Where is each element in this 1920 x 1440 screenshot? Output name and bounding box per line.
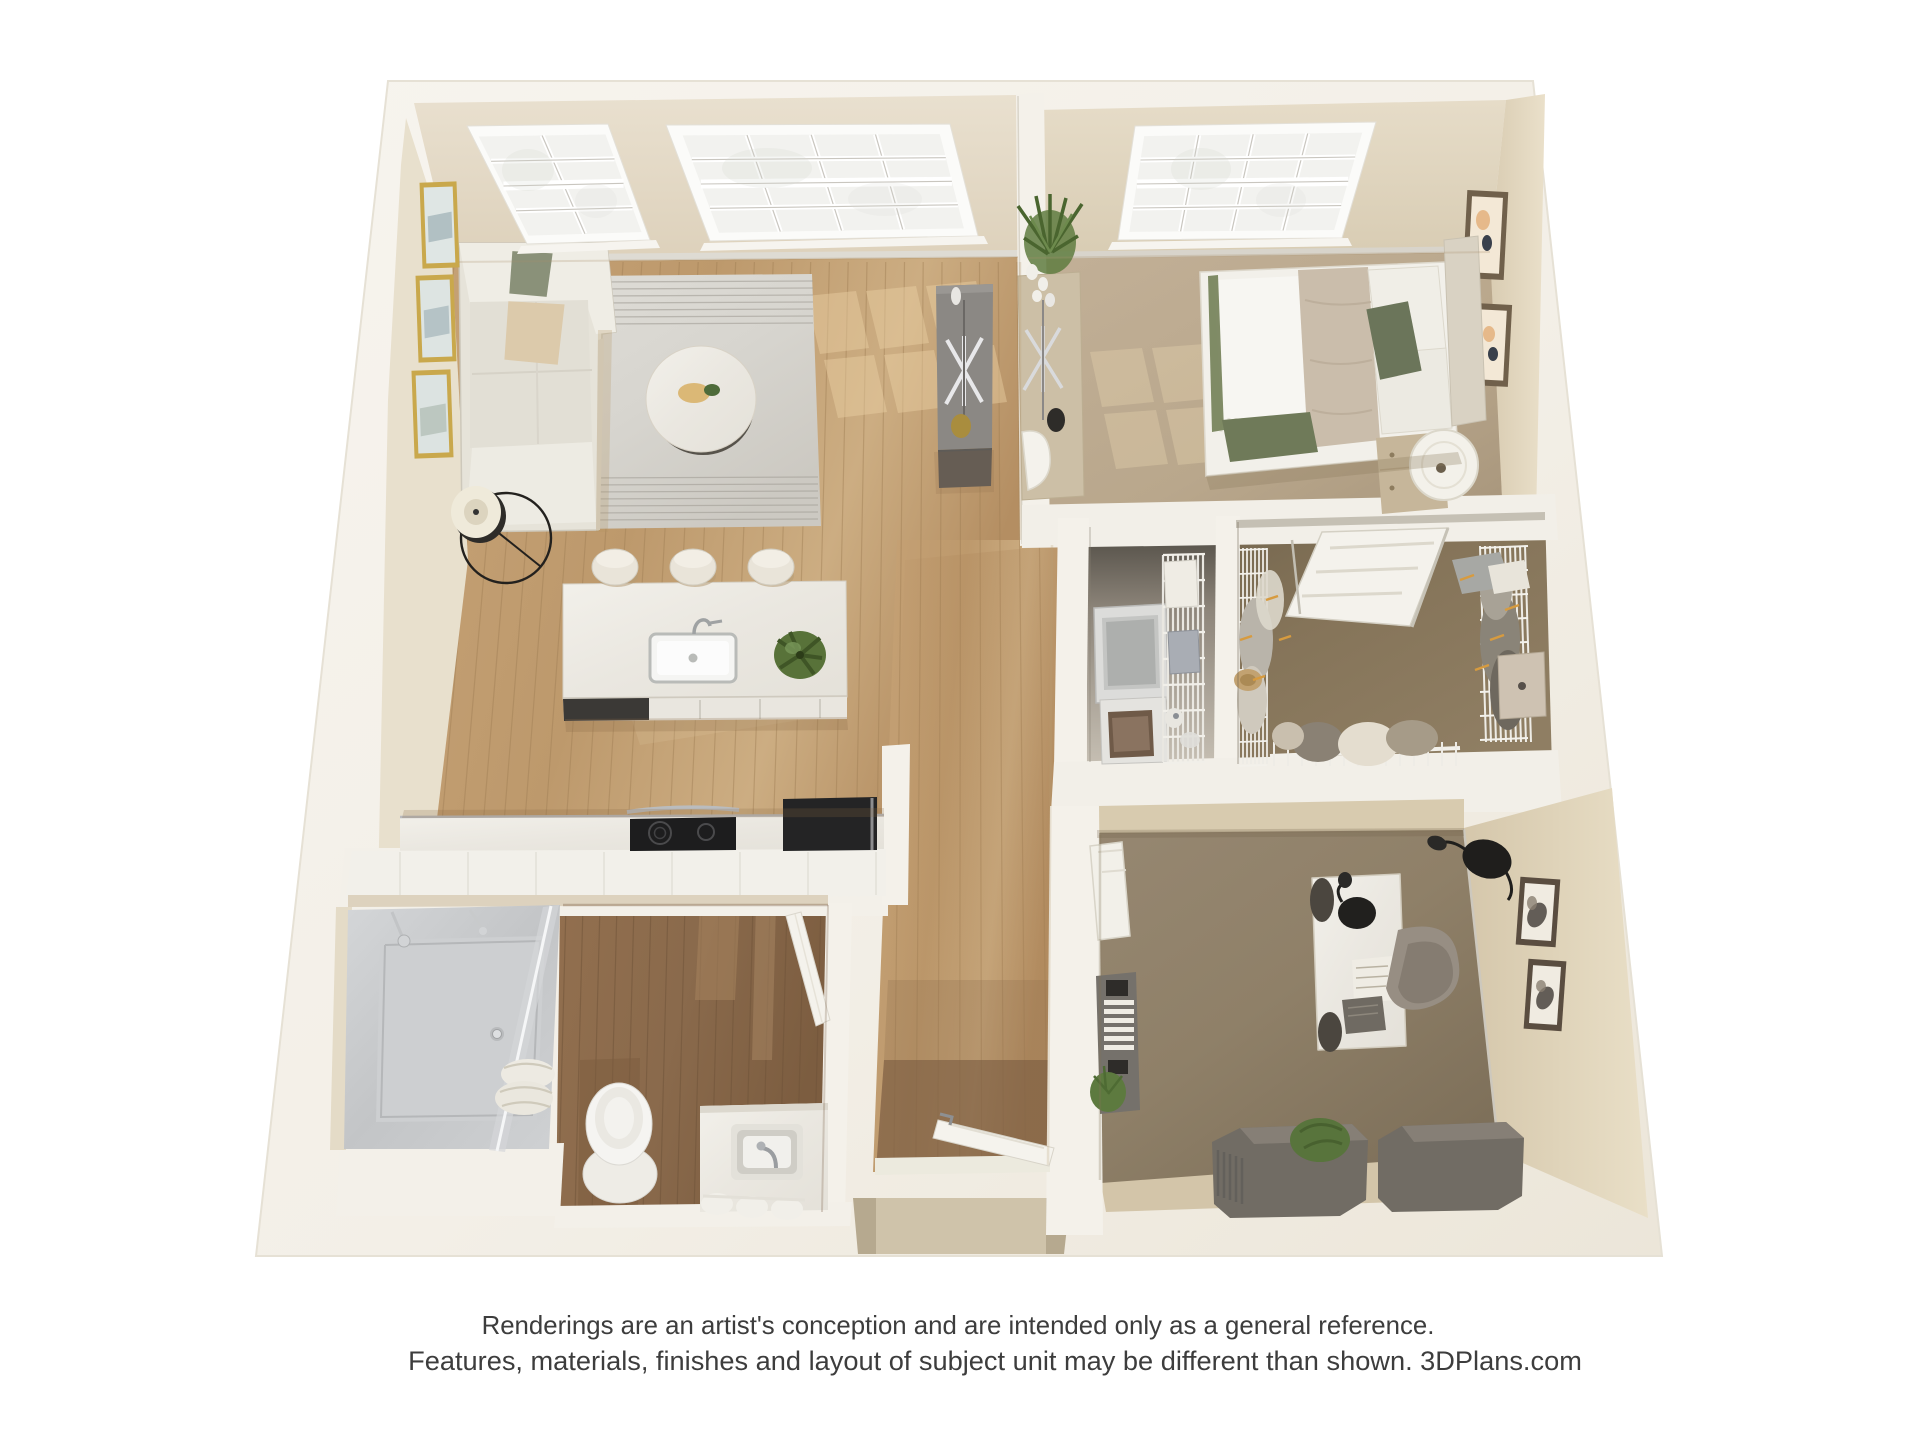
svg-text:Renderings are an artist's con: Renderings are an artist's conception an…: [482, 1312, 1435, 1340]
svg-text:Features, materials, finishes: Features, materials, finishes and layout…: [408, 1345, 1582, 1376]
